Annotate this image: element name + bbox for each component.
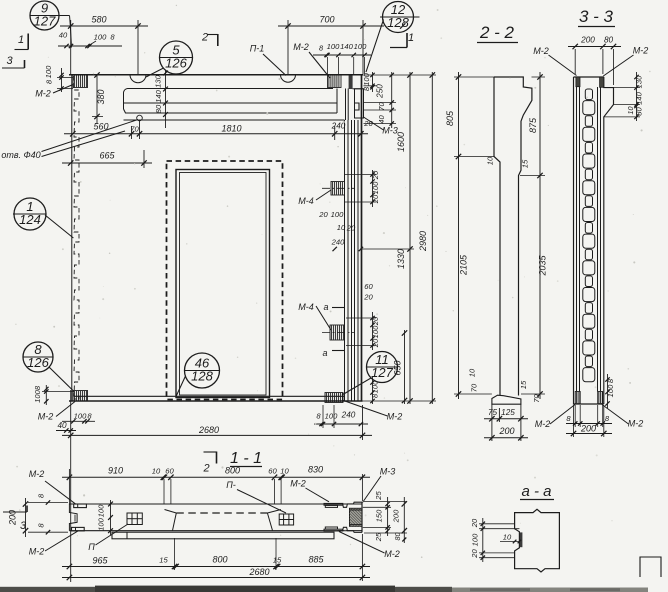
svg-text:127: 127: [371, 365, 393, 380]
svg-text:80: 80: [604, 36, 614, 45]
svg-text:100: 100: [74, 411, 87, 420]
svg-text:15: 15: [521, 159, 530, 168]
svg-text:100: 100: [371, 325, 380, 338]
svg-text:200: 200: [580, 424, 596, 434]
svg-text:200: 200: [498, 426, 514, 436]
svg-text:10: 10: [468, 368, 477, 377]
svg-text:10: 10: [152, 467, 161, 476]
svg-text:2: 2: [201, 32, 208, 44]
svg-text:10: 10: [280, 467, 289, 476]
svg-text:15: 15: [159, 556, 168, 565]
svg-text:125: 125: [501, 408, 515, 417]
svg-text:70: 70: [532, 394, 541, 403]
svg-text:80: 80: [635, 107, 644, 116]
svg-text:70: 70: [470, 383, 479, 392]
svg-text:20: 20: [346, 224, 356, 233]
svg-text:1330: 1330: [396, 249, 406, 269]
svg-text:140: 140: [154, 89, 163, 102]
svg-text:М-4: М-4: [298, 302, 314, 312]
svg-text:126: 126: [165, 56, 187, 71]
svg-text:1: 1: [408, 32, 414, 44]
svg-text:3 - 3: 3 - 3: [579, 7, 614, 26]
svg-text:150: 150: [375, 509, 384, 522]
svg-text:1: 1: [18, 34, 24, 46]
svg-text:100: 100: [354, 42, 367, 51]
svg-text:20: 20: [371, 170, 380, 180]
svg-text:М-2: М-2: [628, 419, 644, 429]
svg-text:100: 100: [471, 533, 480, 546]
svg-text:100: 100: [44, 65, 53, 78]
svg-text:40: 40: [59, 31, 68, 40]
svg-text:100: 100: [97, 517, 106, 530]
svg-text:665: 665: [99, 151, 115, 161]
svg-text:М-4: М-4: [298, 196, 314, 206]
svg-text:2 - 2: 2 - 2: [479, 23, 515, 42]
svg-text:800: 800: [212, 555, 227, 565]
svg-text:отв. Ф40: отв. Ф40: [1, 150, 40, 160]
svg-text:830: 830: [308, 465, 323, 475]
svg-text:М-2: М-2: [290, 479, 306, 489]
svg-text:М-2: М-2: [35, 89, 51, 99]
svg-text:20: 20: [371, 194, 380, 204]
svg-text:240: 240: [341, 411, 356, 420]
svg-text:100: 100: [325, 412, 338, 421]
svg-text:800: 800: [225, 466, 240, 476]
svg-text:100: 100: [94, 33, 107, 42]
svg-text:805: 805: [445, 110, 455, 126]
svg-text:2035: 2035: [538, 254, 548, 276]
svg-text:а - а: а - а: [521, 483, 551, 500]
svg-text:2980: 2980: [418, 231, 428, 252]
svg-text:П-: П-: [226, 480, 236, 490]
svg-text:100: 100: [97, 504, 106, 517]
svg-text:100: 100: [362, 72, 371, 85]
svg-text:75: 75: [488, 408, 498, 417]
svg-text:М-2: М-2: [533, 46, 549, 56]
svg-text:20: 20: [371, 338, 380, 348]
svg-text:580: 580: [91, 15, 106, 25]
svg-text:100: 100: [371, 181, 380, 194]
svg-text:126: 126: [27, 355, 49, 370]
svg-text:80: 80: [393, 533, 402, 541]
svg-text:25: 25: [374, 532, 383, 542]
svg-text:2: 2: [202, 463, 209, 475]
svg-text:130: 130: [154, 74, 163, 87]
svg-text:380: 380: [96, 89, 106, 104]
svg-text:2105: 2105: [459, 254, 469, 276]
svg-text:20: 20: [470, 518, 479, 528]
svg-text:100: 100: [606, 384, 615, 397]
svg-text:15: 15: [519, 380, 528, 389]
svg-text:60: 60: [165, 467, 174, 476]
svg-text:1 - 1: 1 - 1: [230, 450, 262, 467]
svg-text:10: 10: [337, 223, 346, 232]
svg-text:140: 140: [635, 91, 644, 104]
svg-text:965: 965: [92, 556, 108, 566]
svg-text:20: 20: [363, 293, 373, 302]
svg-text:15: 15: [273, 556, 282, 565]
svg-text:128: 128: [191, 369, 213, 384]
svg-text:а: а: [323, 302, 328, 312]
svg-text:2680: 2680: [248, 567, 269, 577]
svg-text:875: 875: [528, 117, 538, 133]
svg-text:10: 10: [503, 533, 512, 542]
svg-text:910: 910: [108, 466, 123, 476]
svg-text:а: а: [322, 348, 327, 358]
svg-text:40: 40: [377, 115, 386, 124]
svg-text:127: 127: [34, 14, 56, 29]
svg-text:М-2: М-2: [293, 42, 309, 52]
svg-text:140: 140: [340, 42, 353, 51]
svg-text:М-2: М-2: [384, 549, 400, 559]
svg-text:П-1: П-1: [250, 44, 265, 54]
svg-text:М-2: М-2: [535, 419, 551, 429]
svg-text:60: 60: [364, 282, 373, 291]
svg-text:20: 20: [318, 210, 328, 219]
svg-text:885: 885: [308, 555, 324, 565]
svg-text:40: 40: [57, 421, 67, 430]
svg-text:80: 80: [154, 104, 163, 113]
svg-text:60: 60: [268, 467, 277, 476]
svg-text:100: 100: [327, 42, 340, 51]
svg-text:240: 240: [331, 238, 345, 247]
svg-text:100: 100: [33, 389, 42, 402]
svg-text:М-2: М-2: [387, 412, 403, 422]
svg-text:20: 20: [371, 316, 380, 326]
svg-text:10: 10: [486, 156, 495, 165]
svg-text:200: 200: [392, 509, 401, 523]
svg-text:25: 25: [374, 491, 383, 501]
svg-text:700: 700: [319, 15, 334, 25]
svg-text:1600: 1600: [396, 132, 406, 152]
svg-text:200: 200: [8, 510, 18, 526]
svg-text:М-3: М-3: [380, 467, 396, 477]
svg-text:3: 3: [6, 55, 13, 67]
svg-text:20: 20: [470, 549, 479, 559]
svg-text:200: 200: [580, 36, 595, 45]
svg-text:П: П: [88, 542, 95, 552]
svg-text:М-2: М-2: [38, 412, 54, 422]
svg-text:М-2: М-2: [29, 469, 45, 479]
svg-text:130: 130: [635, 75, 644, 88]
svg-text:М-2: М-2: [29, 547, 45, 557]
svg-text:М-2: М-2: [633, 46, 649, 56]
svg-text:2680: 2680: [198, 425, 219, 435]
svg-text:1810: 1810: [221, 123, 241, 133]
svg-text:100: 100: [331, 210, 344, 219]
